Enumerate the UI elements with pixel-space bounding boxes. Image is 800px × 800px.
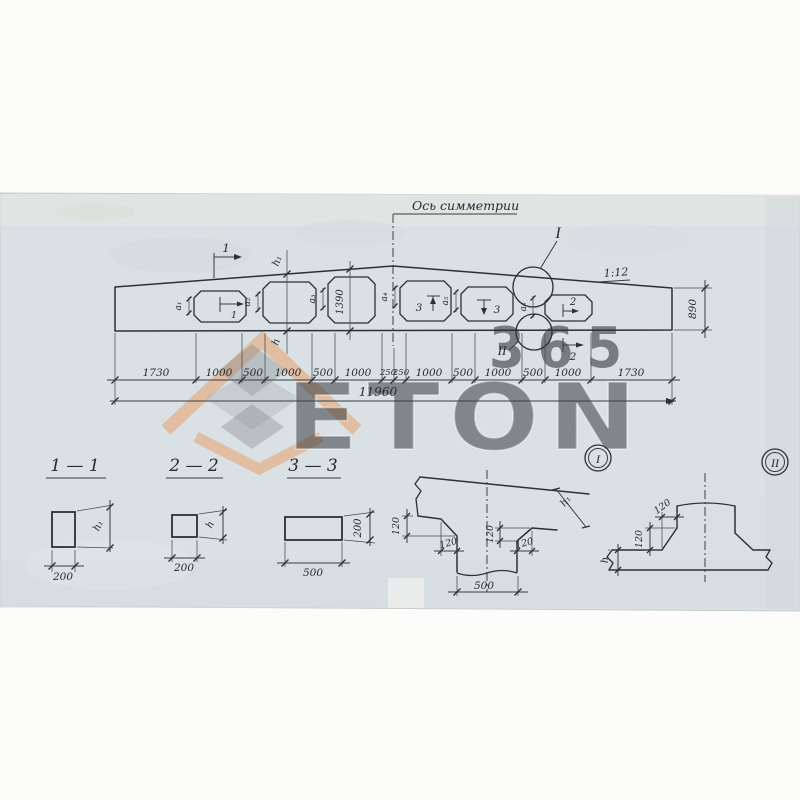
mid-height-value: 1390	[335, 289, 346, 315]
segment-7: 250	[392, 368, 410, 378]
svg-text:1: 1	[231, 310, 237, 321]
segment-0: 1730	[143, 367, 170, 379]
segment-11: 500	[523, 367, 543, 379]
svg-text:2: 2	[569, 297, 576, 308]
section-cut-flag-1-label: 1	[222, 241, 229, 255]
gap-a5: а₅	[441, 296, 451, 305]
end-height-value: 890	[687, 299, 699, 319]
section-2-2-title: 2 — 2	[168, 456, 218, 476]
section-2-2-width: 200	[173, 562, 194, 574]
segment-8: 1000	[416, 367, 443, 379]
svg-text:2: 2	[569, 351, 577, 363]
blueprint-canvas: ETON 365 Ось симметрии 1:12 I II 1	[0, 0, 800, 800]
detail-1-mark: I	[554, 225, 561, 242]
total-length-value: 11960	[359, 385, 398, 399]
segment-9: 500	[453, 367, 473, 379]
segment-12: 1000	[555, 367, 582, 379]
detail-2-dim-left: 120	[634, 530, 645, 548]
segment-3: 1000	[275, 367, 302, 379]
detail-2-mark: II	[497, 343, 507, 358]
section-1-1-title: 1 — 1	[50, 456, 99, 476]
detail-2-height: h	[600, 557, 611, 563]
scanned-blueprint-page: { "watermark": { "brand": "ETON", "numbe…	[0, 0, 800, 800]
axis-label: Ось симметрии	[412, 198, 519, 213]
section-3-3-width: 500	[303, 567, 323, 579]
gap-a6: а₆	[519, 302, 529, 311]
detail-2-badge-label: II	[770, 456, 780, 470]
section-3-3-title: 3 — 3	[288, 456, 337, 476]
slope-label: 1:12	[603, 265, 629, 280]
gap-a2: а₂	[243, 297, 253, 306]
svg-text:3: 3	[494, 304, 501, 316]
section-1-1-width: 200	[52, 571, 73, 583]
detail-1-dim-left-v: 120	[391, 517, 402, 535]
svg-text:3: 3	[416, 302, 423, 314]
segment-10: 1000	[485, 367, 512, 379]
segment-5: 1000	[345, 367, 372, 379]
detail-1-width: 500	[474, 580, 494, 592]
gap-a3: а₃	[308, 294, 318, 303]
paper-white-patch	[388, 578, 424, 608]
section-3-3-height: 200	[353, 518, 364, 539]
detail-1-dim-right-v: 120	[485, 525, 496, 543]
gap-a1: а₁	[174, 302, 184, 311]
gap-a4: а₄	[380, 292, 390, 301]
segment-2: 500	[243, 367, 263, 379]
segment-1: 1000	[206, 367, 233, 379]
segment-13: 1730	[618, 367, 645, 379]
segment-4: 500	[313, 367, 333, 379]
